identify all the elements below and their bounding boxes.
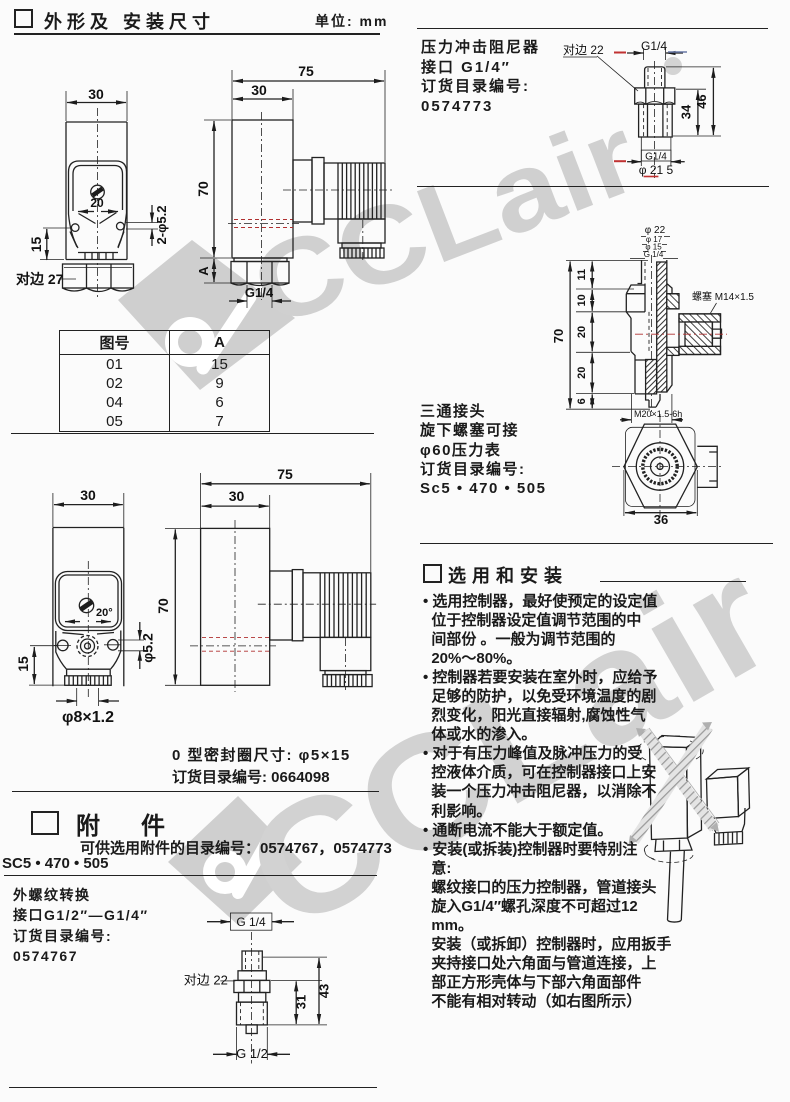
svg-text:43: 43 <box>317 984 332 998</box>
svg-text:20: 20 <box>576 326 588 338</box>
svg-text:A: A <box>196 266 211 276</box>
svg-text:11: 11 <box>576 269 588 281</box>
svg-text:M20×1.5-6h: M20×1.5-6h <box>634 409 682 419</box>
svg-text:20: 20 <box>576 367 588 379</box>
svg-text:螺塞 M14×1.5: 螺塞 M14×1.5 <box>692 290 754 303</box>
svg-text:对边 22: 对边 22 <box>184 973 228 988</box>
svg-text:70: 70 <box>195 181 211 197</box>
svg-text:10: 10 <box>576 294 588 306</box>
svg-text:φ8×1.2: φ8×1.2 <box>62 709 114 726</box>
svg-text:75: 75 <box>298 63 314 79</box>
svg-text:30: 30 <box>88 86 104 102</box>
svg-text:G1/4: G1/4 <box>641 39 667 53</box>
svg-text:30: 30 <box>80 487 96 503</box>
svg-text:46: 46 <box>694 94 709 108</box>
svg-text:36: 36 <box>654 512 668 527</box>
svg-text:G 1/2: G 1/2 <box>236 1046 268 1061</box>
svg-text:2-φ5.2: 2-φ5.2 <box>154 206 169 245</box>
svg-text:30: 30 <box>251 82 267 98</box>
svg-text:φ5.2: φ5.2 <box>140 633 156 663</box>
svg-text:15: 15 <box>15 656 31 672</box>
svg-text:G1/4: G1/4 <box>245 285 274 300</box>
svg-text:G 1/4: G 1/4 <box>236 915 266 929</box>
svg-text:30: 30 <box>229 488 245 504</box>
svg-text:15: 15 <box>28 237 44 253</box>
svg-text:20: 20 <box>90 196 104 210</box>
svg-text:对边 22: 对边 22 <box>563 43 604 57</box>
svg-text:70: 70 <box>551 329 566 343</box>
svg-text:φ 21 5: φ 21 5 <box>639 163 674 177</box>
svg-text:对边 27: 对边 27 <box>16 271 64 287</box>
svg-text:70: 70 <box>155 598 171 614</box>
svg-text:G1/4: G1/4 <box>645 152 667 163</box>
svg-text:20°: 20° <box>96 607 113 619</box>
svg-text:31: 31 <box>294 995 309 1009</box>
svg-text:75: 75 <box>277 466 293 482</box>
svg-text:34: 34 <box>679 104 694 119</box>
svg-text:6: 6 <box>576 398 588 404</box>
svg-text:G 1/4: G 1/4 <box>644 250 664 259</box>
